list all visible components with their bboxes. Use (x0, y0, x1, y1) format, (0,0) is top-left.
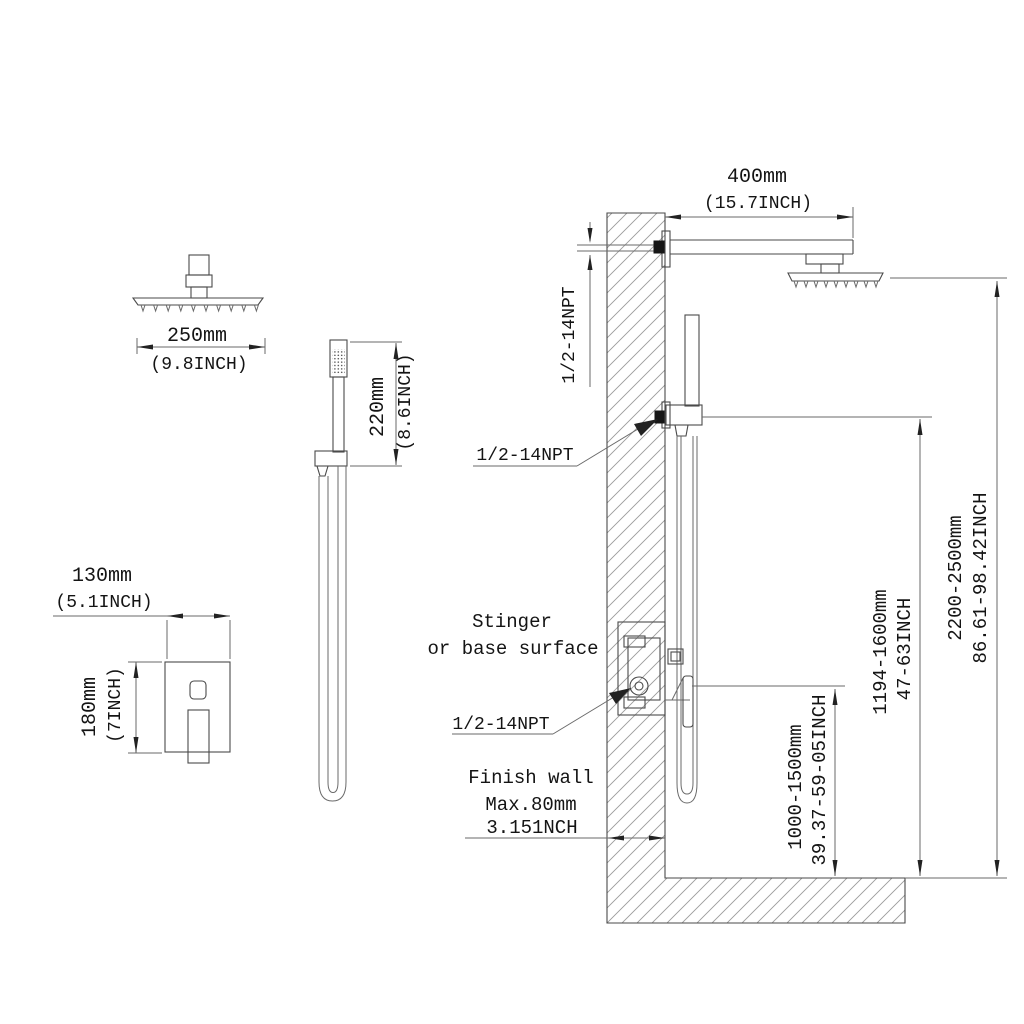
arrow-left (665, 215, 681, 220)
head-connector (821, 264, 839, 273)
arrow-right (837, 215, 853, 220)
valve-height-inch-label: (7INCH) (106, 667, 126, 743)
hose-nut (317, 466, 328, 476)
valve-height-mm-label: 180mm (79, 677, 102, 737)
arrow-down (588, 228, 593, 243)
arrow-up (833, 689, 838, 705)
shower-head-nozzles (141, 305, 258, 311)
thread-bottom-label: 1/2-14NPT (452, 715, 549, 735)
hand-shower-holder (315, 451, 347, 466)
valve-diverter-button (190, 681, 206, 699)
wall-shower-head-nozzles (794, 281, 878, 287)
wall-note-line1: Finish wall (468, 767, 593, 789)
hose-outer (319, 466, 346, 801)
valve-trim-figure: 130mm (5.1INCH) 180mm (7INCH) (53, 565, 230, 763)
surface-note-line2: or base surface (427, 638, 598, 660)
npt-bottom-leader (553, 697, 614, 734)
height-hose-mm-label: 1000-1500mm (785, 724, 807, 849)
hand-length-inch-label: (8.6INCH) (396, 353, 416, 450)
height-showerhead-inch-label: 86.61-98.42INCH (970, 492, 992, 663)
arrow-up (995, 281, 1000, 297)
arrow-down (918, 860, 923, 876)
overhead-width-mm-label: 250mm (167, 325, 227, 348)
hand-shower-spray-face (332, 349, 345, 375)
arrow-up (588, 255, 593, 270)
valve-width-inch-label: (5.1INCH) (55, 593, 152, 613)
overhead-width-inch-label: (9.8INCH) (150, 355, 247, 375)
head-connector-top (189, 255, 209, 275)
arm-elbow (806, 254, 843, 264)
head-connector-base (191, 287, 207, 298)
hand-shower-figure: 220mm (8.6INCH) (315, 340, 416, 801)
arm-thread-connector (654, 241, 664, 253)
overhead-shower-figure: 250mm (9.8INCH) (133, 255, 265, 375)
wall-shower-head-plate (788, 273, 883, 281)
valve-plate (165, 662, 230, 752)
arrow-left (137, 345, 153, 350)
shower-installation-diagram: 250mm (9.8INCH) 220mm (8.6INCH) 130mm (0, 0, 1024, 1024)
wall-hose-inner (681, 436, 693, 794)
arm-length-mm-label: 400mm (727, 166, 787, 189)
shower-head-plate (133, 298, 263, 305)
valve-handle-lever (683, 676, 693, 727)
thread-top-label: 1/2-14NPT (560, 286, 580, 383)
wall-and-floor-section (607, 213, 905, 923)
height-slidebar-mm-label: 1194-1600mm (870, 589, 892, 714)
installation-figure: 400mm (15.7INCH) 1/2-14NPT 1/2-14NPT (427, 166, 1007, 923)
arrow-right (214, 614, 230, 619)
hand-shower-handle (333, 377, 344, 452)
arrow-right (249, 345, 265, 350)
arrow-up (134, 662, 139, 678)
height-showerhead-mm-label: 2200-2500mm (945, 515, 967, 640)
valve-width-mm-label: 130mm (72, 565, 132, 588)
head-connector-mid (186, 275, 212, 287)
wall-note-line2: Max.80mm (485, 794, 576, 816)
height-hose-inch-label: 39.37-59-05INCH (809, 694, 831, 865)
wall-note-line3: 3.151NCH (486, 817, 577, 839)
hand-length-mm-label: 220mm (367, 377, 390, 437)
arrow-down (833, 860, 838, 876)
valve-lever (188, 710, 209, 763)
arm-length-inch-label: (15.7INCH) (704, 194, 812, 214)
surface-note-line1: Stinger (472, 611, 552, 633)
height-slidebar-inch-label: 47-63INCH (894, 598, 916, 701)
hose-inner (328, 466, 338, 793)
hand-shower-holder-bracket (666, 405, 702, 425)
wall-hose-outer (677, 436, 697, 803)
valve-stem-inner (671, 652, 680, 661)
holder-thread-connector (655, 411, 664, 423)
drawing-canvas: 250mm (9.8INCH) 220mm (8.6INCH) 130mm (0, 0, 1024, 1024)
arrow-left (167, 614, 183, 619)
shower-arm (670, 240, 853, 254)
arrow-up (918, 419, 923, 435)
arrow-down (995, 860, 1000, 876)
hose-nut (675, 425, 688, 436)
slide-bar (685, 315, 699, 406)
thread-mid-label: 1/2-14NPT (476, 446, 573, 466)
arrow-down (134, 737, 139, 753)
